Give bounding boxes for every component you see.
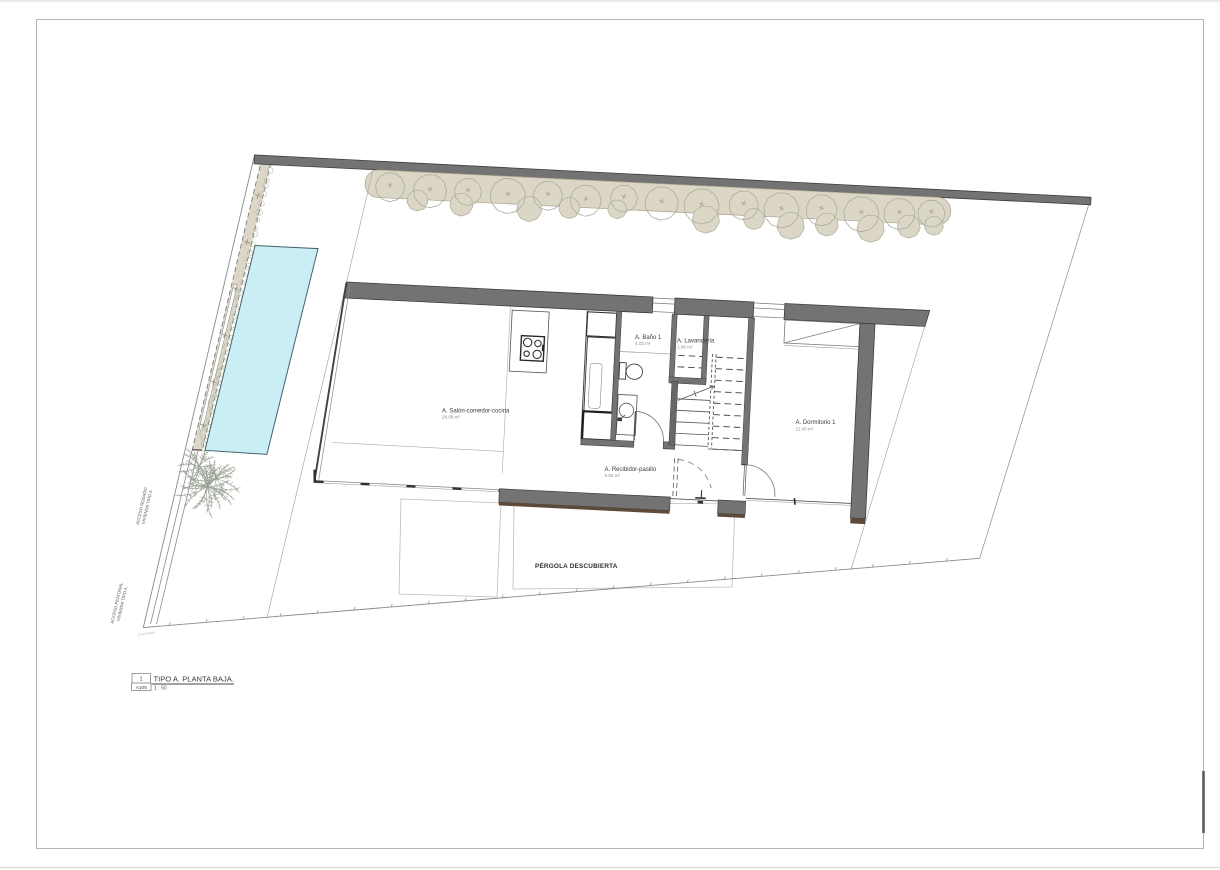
- svg-text:1.06 m²: 1.06 m²: [677, 345, 693, 350]
- svg-text:A105: A105: [136, 685, 148, 691]
- svg-text:A. Dormitorio 1: A. Dormitorio 1: [796, 420, 837, 426]
- svg-text:1: 1: [139, 677, 142, 683]
- svg-text:1 : 50: 1 : 50: [154, 686, 167, 692]
- svg-text:PÉRGOLA DESCUBIERTA: PÉRGOLA DESCUBIERTA: [535, 561, 618, 570]
- svg-text:TIPO A. PLANTA BAJA.: TIPO A. PLANTA BAJA.: [154, 675, 234, 684]
- svg-text:6.50 m²: 6.50 m²: [605, 473, 621, 478]
- svg-text:28.08 m²: 28.08 m²: [442, 415, 461, 420]
- svg-text:4.03 m²: 4.03 m²: [635, 341, 651, 346]
- svg-text:11.40 m²: 11.40 m²: [796, 427, 814, 432]
